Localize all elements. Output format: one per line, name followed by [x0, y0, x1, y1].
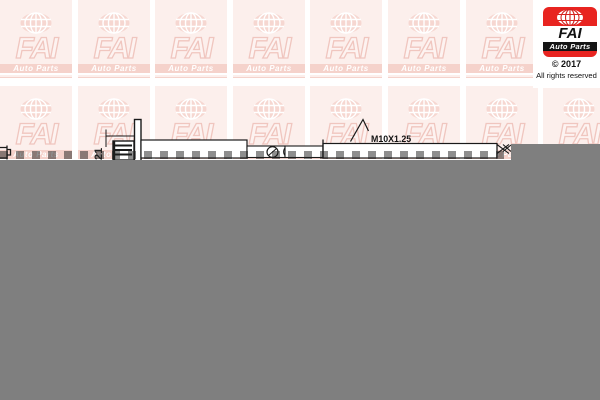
product-image: FAI Auto Parts FAI Auto Parts	[0, 0, 600, 400]
decode-artifact-strip	[0, 151, 511, 159]
globe-icon	[556, 9, 584, 26]
brand-logo-card: FAI Auto Parts © 2017 All rights reserve…	[533, 0, 600, 88]
rights-reserved-text: All rights reserved	[533, 71, 600, 80]
logo-brand-text: FAI	[543, 26, 597, 42]
thread-spec-label: M10X1.25	[371, 134, 411, 144]
unloaded-image-area	[0, 160, 600, 400]
fai-logo: FAI Auto Parts	[543, 7, 597, 57]
logo-subtext: Auto Parts	[543, 42, 597, 51]
copyright-year: © 2017	[533, 59, 600, 69]
leader-line	[351, 120, 369, 142]
